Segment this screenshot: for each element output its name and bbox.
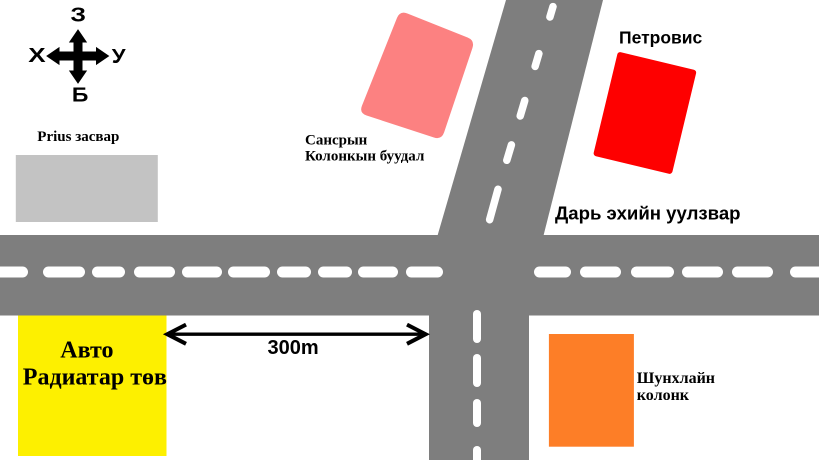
svg-text:Б: Б — [72, 85, 89, 107]
svg-text:У: У — [112, 46, 126, 68]
svg-text:Х: Х — [28, 45, 46, 67]
svg-text:Дарь эхийн уулзвар: Дарь эхийн уулзвар — [555, 203, 741, 224]
svg-text:колонк: колонк — [637, 387, 690, 404]
svg-text:Шунхлайн: Шунхлайн — [637, 370, 715, 387]
svg-text:З: З — [70, 5, 86, 27]
svg-text:Авто: Авто — [60, 338, 113, 364]
svg-text:Радиатар төв: Радиатар төв — [23, 365, 167, 391]
svg-text:Сансрын: Сансрын — [305, 133, 368, 149]
svg-text:300m: 300m — [268, 337, 319, 359]
svg-text:Колонкын буудал: Колонкын буудал — [305, 149, 425, 165]
svg-text:Петровис: Петровис — [619, 28, 703, 48]
svg-text:Prius засвар: Prius засвар — [37, 129, 119, 145]
